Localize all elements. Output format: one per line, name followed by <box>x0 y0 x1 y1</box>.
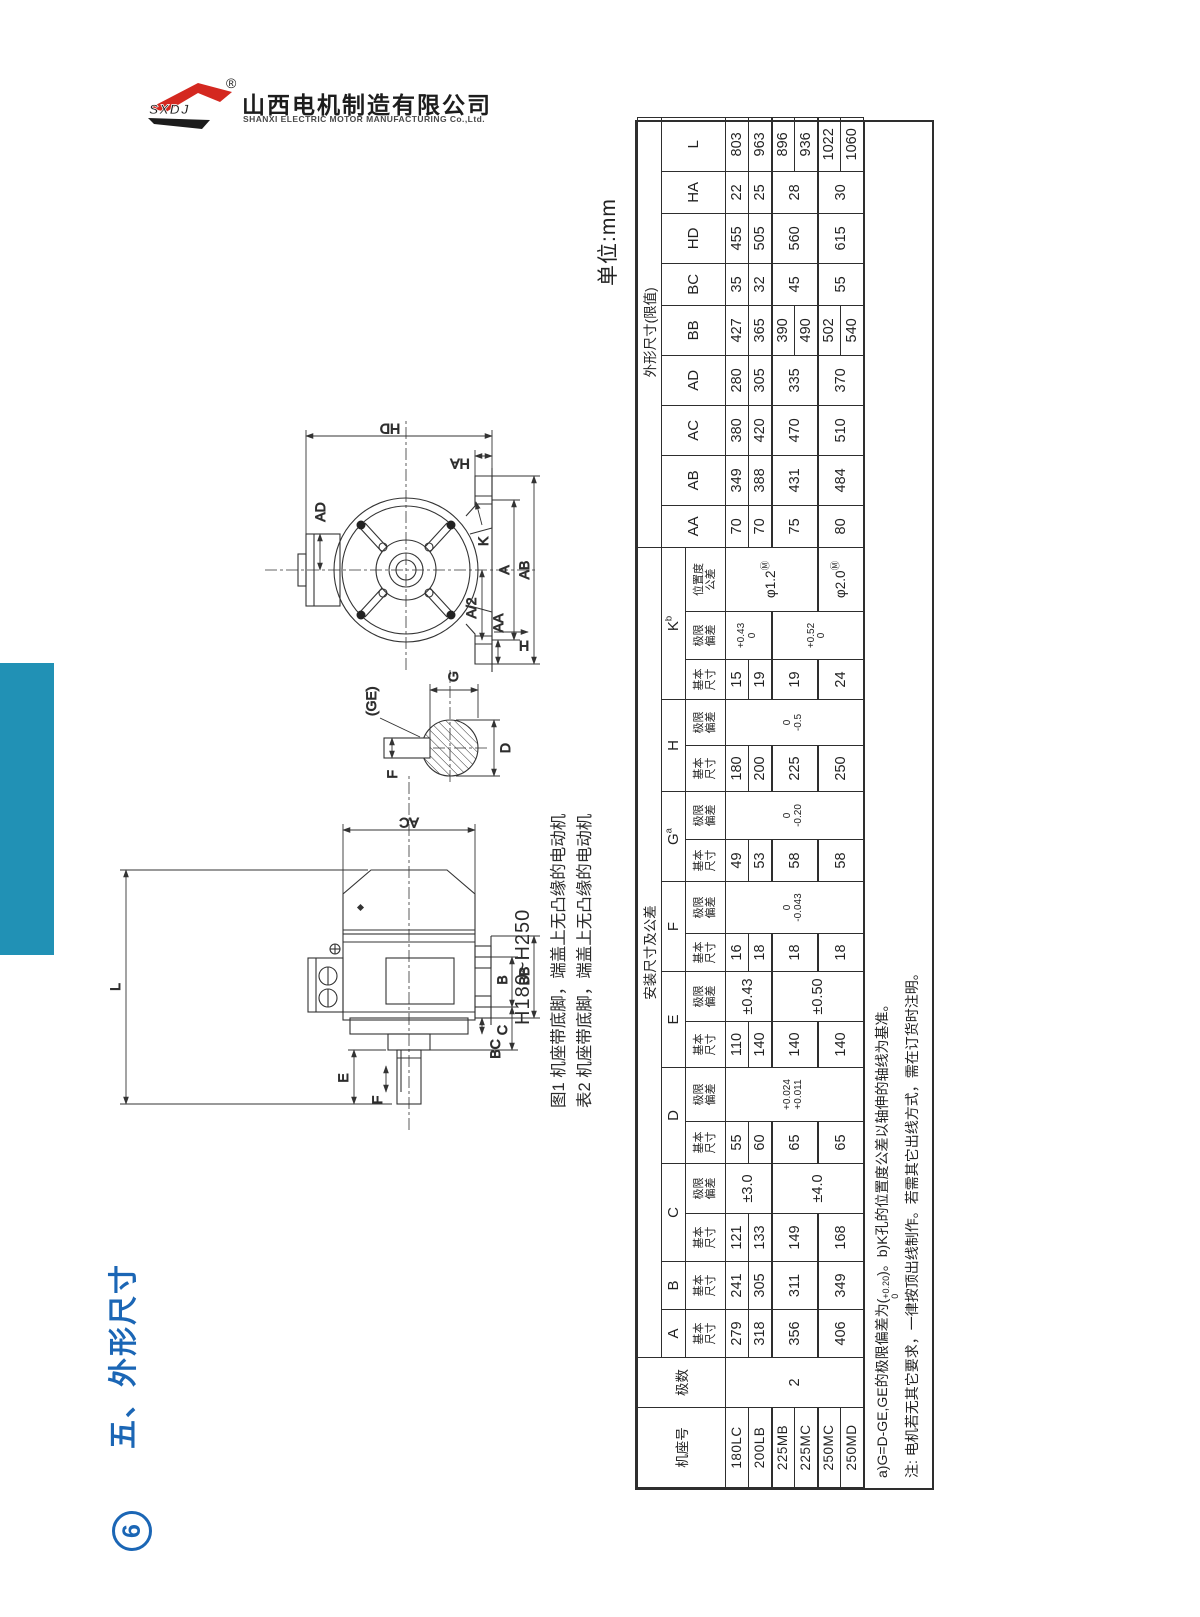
table-header-cell: Kb <box>662 547 686 699</box>
registered-mark: ® <box>226 78 237 91</box>
table-header-cell: 极限 偏差 <box>686 700 726 746</box>
dim-label-AD: AD <box>312 502 328 521</box>
table-cell: 241 <box>726 1262 749 1310</box>
table-notes: a)G=D-GE,GE的极限偏差为(+0.200)。b)K孔的位置度公差以轴伸的… <box>864 122 932 1488</box>
table-cell: 58 <box>818 840 864 882</box>
table-cell: 225MC <box>795 1408 818 1488</box>
table-header-row: 机座号极数安装尺寸及公差外形尺寸(限值) <box>638 117 662 1487</box>
mounting-feet <box>475 936 491 1025</box>
table-header-cell: 位置度 公差 <box>686 547 726 611</box>
dim-label-C: C <box>494 1025 510 1035</box>
table-cell: 32 <box>749 263 772 305</box>
rotated-sheet: 单位:mm H180~H250 图1 机座带底脚，端盖上无凸缘的电动机 表2 机… <box>90 120 1170 1570</box>
table-cell: 15 <box>726 660 749 700</box>
table-cell: 25 <box>749 171 772 213</box>
table-cell: 305 <box>749 355 772 405</box>
table-header-cell: 基本 尺寸 <box>686 660 726 700</box>
table-cell: 560 <box>772 213 818 263</box>
table-cell: 28 <box>772 171 818 213</box>
table-header-cell: AD <box>662 355 726 405</box>
table-cell: 58 <box>772 840 818 882</box>
table-header-cell: HA <box>662 171 726 213</box>
dim-label-B: B <box>494 975 510 984</box>
table-cell: 390 <box>772 305 795 355</box>
table-header-cell: 极限 偏差 <box>686 882 726 934</box>
table-cell: 0 -0.5 <box>726 700 864 746</box>
note-a-text: a)G=D-GE,GE的极限偏差为( <box>874 1299 890 1478</box>
table-cell: 388 <box>749 455 772 505</box>
table-cell: ±0.50 <box>772 972 864 1022</box>
dim-label-A: A <box>496 565 512 575</box>
table-cell: 318 <box>749 1310 772 1358</box>
table-cell: 279 <box>726 1310 749 1358</box>
table-cell: 80 <box>818 505 864 547</box>
dim-label-F-side: F <box>369 1096 385 1105</box>
table-cell: 133 <box>749 1214 772 1262</box>
table-cell: 250MC <box>818 1408 841 1488</box>
table-cell: 936 <box>795 117 818 171</box>
table-header-cell: 极限 偏差 <box>686 972 726 1022</box>
table-cell: 896 <box>772 117 795 171</box>
table-header-cell: D <box>662 1068 686 1164</box>
table-header-cell: 基本 尺寸 <box>686 1262 726 1310</box>
table-cell: +0.43 0 <box>726 612 772 660</box>
logo-mark-text: SXDJ <box>149 101 190 117</box>
table-cell: 427 <box>726 305 749 355</box>
table-note-order: 注: 电机若无其它要求，一律按顶出线制作。若需其它出线方式，需在订货时注明。 <box>900 132 925 1478</box>
table-header-cell: 极数 <box>638 1358 726 1408</box>
table-cell: 305 <box>749 1262 772 1310</box>
table-cell: 55 <box>726 1122 749 1164</box>
table-cell: 510 <box>818 405 864 455</box>
table-cell: 140 <box>818 1022 864 1068</box>
table-cell: 356 <box>772 1310 818 1358</box>
dim-label-K: K <box>475 536 491 546</box>
table-header-cell: 外形尺寸(限值) <box>638 117 662 547</box>
dim-label-D: D <box>497 743 513 753</box>
table-cell: 35 <box>726 263 749 305</box>
table-header-row: ABCDEFGaHKbAAABACADBBBCHDHAL <box>662 117 686 1487</box>
table-cell: 1060 <box>841 117 864 171</box>
table-cell: 180 <box>726 746 749 792</box>
table-cell: 200LB <box>749 1408 772 1488</box>
table-cell: 420 <box>749 405 772 455</box>
table-cell: 540 <box>841 305 864 355</box>
table-cell: ±0.43 <box>726 972 772 1022</box>
table-header-cell: H <box>662 700 686 792</box>
table-cell: 70 <box>726 505 749 547</box>
table-cell: 149 <box>772 1214 818 1262</box>
table-cell: 250MD <box>841 1408 864 1488</box>
shaft-section-drawing: F (GE) G D <box>363 670 513 782</box>
table-header-cell: 安装尺寸及公差 <box>638 547 662 1357</box>
table-cell: 19 <box>749 660 772 700</box>
table-cell: 963 <box>749 117 772 171</box>
table-header-cell: 机座号 <box>638 1408 726 1488</box>
key-detail <box>384 738 430 758</box>
table-header-cell: 基本 尺寸 <box>686 1022 726 1068</box>
table-cell: 60 <box>749 1122 772 1164</box>
table-cell: 55 <box>818 263 864 305</box>
end-view-drawing: HD HA AD K A/2 AA A AB <box>265 420 540 672</box>
side-view-drawing: L AC E F B BB C <box>107 775 540 1130</box>
table-header-cell: BC <box>662 263 726 305</box>
side-accent-bar <box>0 663 54 955</box>
table-cell: 140 <box>772 1022 818 1068</box>
table-header-cell: L <box>662 117 726 171</box>
end-view-dimensions: HD HA AD K A/2 AA A AB <box>306 421 540 664</box>
table-cell: 490 <box>795 305 818 355</box>
catalog-page: { "logo": { "mark": "SXDJ", "registered"… <box>0 0 1200 1617</box>
table-cell: 0 -0.20 <box>726 792 864 840</box>
table-cell: 455 <box>726 213 749 263</box>
table-cell: 75 <box>772 505 818 547</box>
table-cell: 431 <box>772 455 818 505</box>
table-cell: 16 <box>726 934 749 972</box>
table-cell: 484 <box>818 455 864 505</box>
table-cell: 470 <box>772 405 818 455</box>
dimension-table-box: 机座号极数安装尺寸及公差外形尺寸(限值)ABCDEFGaHKbAAABACADB… <box>635 120 934 1490</box>
dim-label-BC: BC <box>487 1039 503 1058</box>
table-cell: 2 <box>726 1358 864 1408</box>
dim-label-F: F <box>384 770 400 779</box>
table-header-cell: 基本 尺寸 <box>686 1310 726 1358</box>
table-header-cell: 极限 偏差 <box>686 1164 726 1214</box>
table-cell: φ2.0Ⓜ <box>818 547 864 611</box>
table-header-cell: 基本 尺寸 <box>686 1122 726 1164</box>
table-cell: 70 <box>749 505 772 547</box>
table-cell: 18 <box>749 934 772 972</box>
note-a-tolerance: +0.200 <box>882 1276 900 1299</box>
table-header-cell: C <box>662 1164 686 1262</box>
dim-label-AB: AB <box>516 561 532 580</box>
terminal-box <box>308 944 343 1012</box>
table-cell: 65 <box>818 1122 864 1164</box>
table-header-cell: 极限 偏差 <box>686 1068 726 1122</box>
table-cell: 19 <box>772 660 818 700</box>
table-cell: 250 <box>818 746 864 792</box>
table-cell: 349 <box>726 455 749 505</box>
table-cell: 121 <box>726 1214 749 1262</box>
table-header-cell: 极限 偏差 <box>686 792 726 840</box>
table-header-cell: AB <box>662 455 726 505</box>
table-cell: 380 <box>726 405 749 455</box>
table-header-cell: AA <box>662 505 726 547</box>
table-cell: 280 <box>726 355 749 405</box>
table-header-cell: BB <box>662 305 726 355</box>
table-header-cell: Ga <box>662 792 686 882</box>
table-cell: 615 <box>818 213 864 263</box>
table-header-cell: 基本 尺寸 <box>686 746 726 792</box>
table-note-a: a)G=D-GE,GE的极限偏差为(+0.200)。b)K孔的位置度公差以轴伸的… <box>870 132 900 1478</box>
dim-label-GE: (GE) <box>363 686 379 716</box>
dim-label-BB: BB <box>516 967 532 986</box>
dim-label-L: L <box>107 983 123 991</box>
table-cell: 45 <box>772 263 818 305</box>
table-cell: φ1.2Ⓜ <box>726 547 818 611</box>
table-header-cell: AC <box>662 405 726 455</box>
note-b-text: )。b)K孔的位置度公差以轴伸的轴线为基准。 <box>874 997 890 1275</box>
table-header-cell: E <box>662 972 686 1068</box>
table-cell: 502 <box>818 305 841 355</box>
table-cell: 225MB <box>772 1408 795 1488</box>
table-header-cell: 基本 尺寸 <box>686 934 726 972</box>
table-cell: 349 <box>818 1262 864 1310</box>
table-cell: 140 <box>749 1022 772 1068</box>
table-cell: 22 <box>726 171 749 213</box>
dim-label-HA: HA <box>450 456 470 472</box>
dim-label-A2: A/2 <box>463 597 479 618</box>
table-cell: 49 <box>726 840 749 882</box>
table-cell: 311 <box>772 1262 818 1310</box>
table-cell: ±3.0 <box>726 1164 772 1214</box>
table-row: 180LC2279241121±3.055+0.024 +0.011110±0.… <box>726 117 749 1487</box>
table-cell: 110 <box>726 1022 749 1068</box>
dim-label-AC: AC <box>399 815 418 831</box>
dim-label-G: G <box>445 671 461 682</box>
table-cell: +0.52 0 <box>772 612 864 660</box>
table-cell: ±4.0 <box>772 1164 864 1214</box>
table-cell: 18 <box>772 934 818 972</box>
dim-label-HD: HD <box>380 421 400 437</box>
dim-label-E: E <box>335 1073 351 1082</box>
table-header-cell: B <box>662 1262 686 1310</box>
table-cell: 180LC <box>726 1408 749 1488</box>
table-cell: 18 <box>818 934 864 972</box>
table-cell: 225 <box>772 746 818 792</box>
table-cell: 53 <box>749 840 772 882</box>
table-cell: 335 <box>772 355 818 405</box>
table-cell: 505 <box>749 213 772 263</box>
table-header-cell: A <box>662 1310 686 1358</box>
table-cell: 370 <box>818 355 864 405</box>
table-cell: 30 <box>818 171 864 213</box>
table-cell: +0.024 +0.011 <box>726 1068 864 1122</box>
dimension-table: 机座号极数安装尺寸及公差外形尺寸(限值)ABCDEFGaHKbAAABACADB… <box>637 117 864 1488</box>
table-cell: 24 <box>818 660 864 700</box>
table-header-cell: 基本 尺寸 <box>686 1214 726 1262</box>
table-cell: 803 <box>726 117 749 171</box>
table-cell: 65 <box>772 1122 818 1164</box>
dim-label-AA: AA <box>490 613 506 632</box>
dim-label-H: H <box>519 638 529 654</box>
table-header-cell: HD <box>662 213 726 263</box>
table-cell: 365 <box>749 305 772 355</box>
table-cell: 0 -0.043 <box>726 882 864 934</box>
table-cell: 1022 <box>818 117 841 171</box>
table-header-cell: 极限 偏差 <box>686 612 726 660</box>
table-cell: 168 <box>818 1214 864 1262</box>
table-cell: 200 <box>749 746 772 792</box>
table-header-cell: F <box>662 882 686 972</box>
table-cell: 406 <box>818 1310 864 1358</box>
motor-outline-drawings: L AC E F B BB C <box>90 120 635 1570</box>
table-header-cell: 基本 尺寸 <box>686 840 726 882</box>
